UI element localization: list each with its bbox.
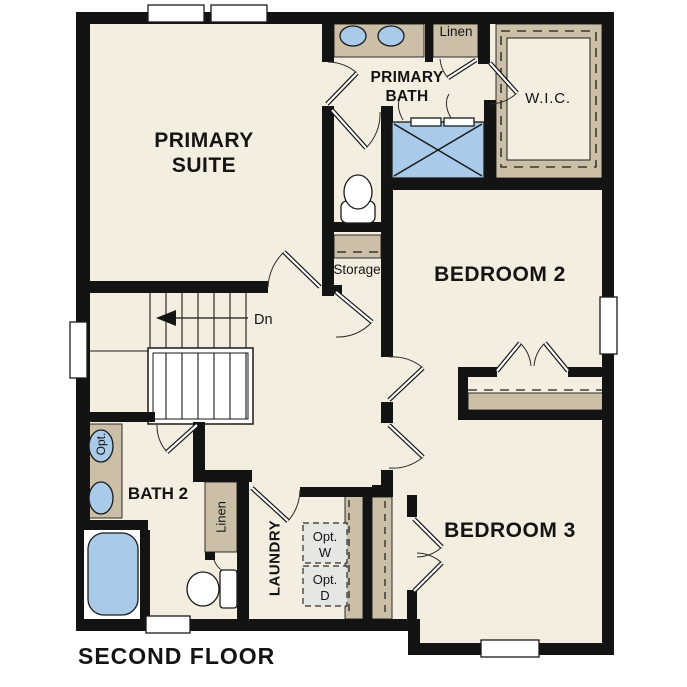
laundry-closet-shelf [345, 495, 363, 619]
washer-label-line1: Opt. [313, 529, 338, 544]
wall-segment [458, 410, 614, 420]
wall-segment [300, 487, 393, 497]
wall-segment [237, 482, 249, 619]
window [148, 5, 204, 22]
wall-segment [205, 552, 215, 560]
shower-door-track [444, 118, 474, 126]
dryer-label-line2: D [320, 588, 329, 603]
sink [340, 26, 366, 46]
laundry-label: LAUNDRY [266, 520, 283, 596]
shower-door-track [411, 118, 441, 126]
wall-segment [408, 619, 420, 655]
window [600, 297, 617, 354]
sink [89, 482, 113, 514]
window [481, 640, 539, 657]
bedroom3-label: BEDROOM 3 [444, 519, 576, 542]
linen-upper-label: Linen [439, 24, 472, 39]
wall-segment [384, 178, 614, 190]
wall-segment [76, 520, 148, 530]
stairs-dn-label: Dn [254, 312, 273, 328]
wall-segment [363, 487, 372, 619]
floor-plan-drawing: Dn [0, 0, 687, 687]
primary-bath-label-line2: BATH [385, 88, 428, 105]
wall-segment [322, 106, 334, 296]
primary-suite-label-line1: PRIMARY [154, 129, 254, 152]
sink [378, 26, 404, 46]
primary-bath-label-line1: PRIMARY [370, 69, 443, 86]
window [211, 5, 267, 22]
storage-shelf [334, 235, 381, 258]
wall-segment [568, 367, 604, 377]
wall-segment [407, 495, 417, 517]
wall-segment [76, 281, 268, 293]
toilet-tank [220, 570, 237, 608]
bath2-label: BATH 2 [128, 484, 188, 503]
dryer-label-line1: Opt. [313, 572, 338, 587]
wall-segment [425, 12, 433, 62]
wall-segment [140, 530, 150, 619]
toilet-bowl [344, 175, 372, 209]
stair-railing [148, 348, 253, 424]
window [70, 322, 87, 378]
wall-segment [76, 412, 155, 422]
bedroom3-closet-shelf [372, 497, 392, 619]
wic-label: W.I.C. [525, 90, 571, 107]
washer-label-line2: W [319, 545, 332, 560]
wall-segment [468, 367, 497, 377]
linen-lower-label: Linen [214, 501, 229, 533]
wall-segment [478, 12, 490, 64]
wall-segment [381, 402, 393, 423]
toilet-bowl [187, 572, 219, 606]
optional-sink-label: Opt. [94, 433, 108, 456]
bedroom2-label: BEDROOM 2 [434, 263, 566, 286]
primary-suite-label-line2: SUITE [172, 154, 236, 177]
floor-plan: Dn [0, 0, 687, 687]
wall-segment [76, 619, 420, 631]
wall-segment [193, 470, 252, 482]
wall-segment [322, 12, 334, 62]
window [146, 616, 190, 633]
wall-segment [407, 590, 417, 620]
storage-label: Storage [333, 262, 380, 277]
floor-bedroom3-extension [408, 487, 614, 655]
page-title: SECOND FLOOR [78, 643, 275, 669]
bedroom2-closet-shelf [468, 393, 604, 410]
bathtub [88, 533, 138, 615]
wall-segment [484, 100, 496, 180]
